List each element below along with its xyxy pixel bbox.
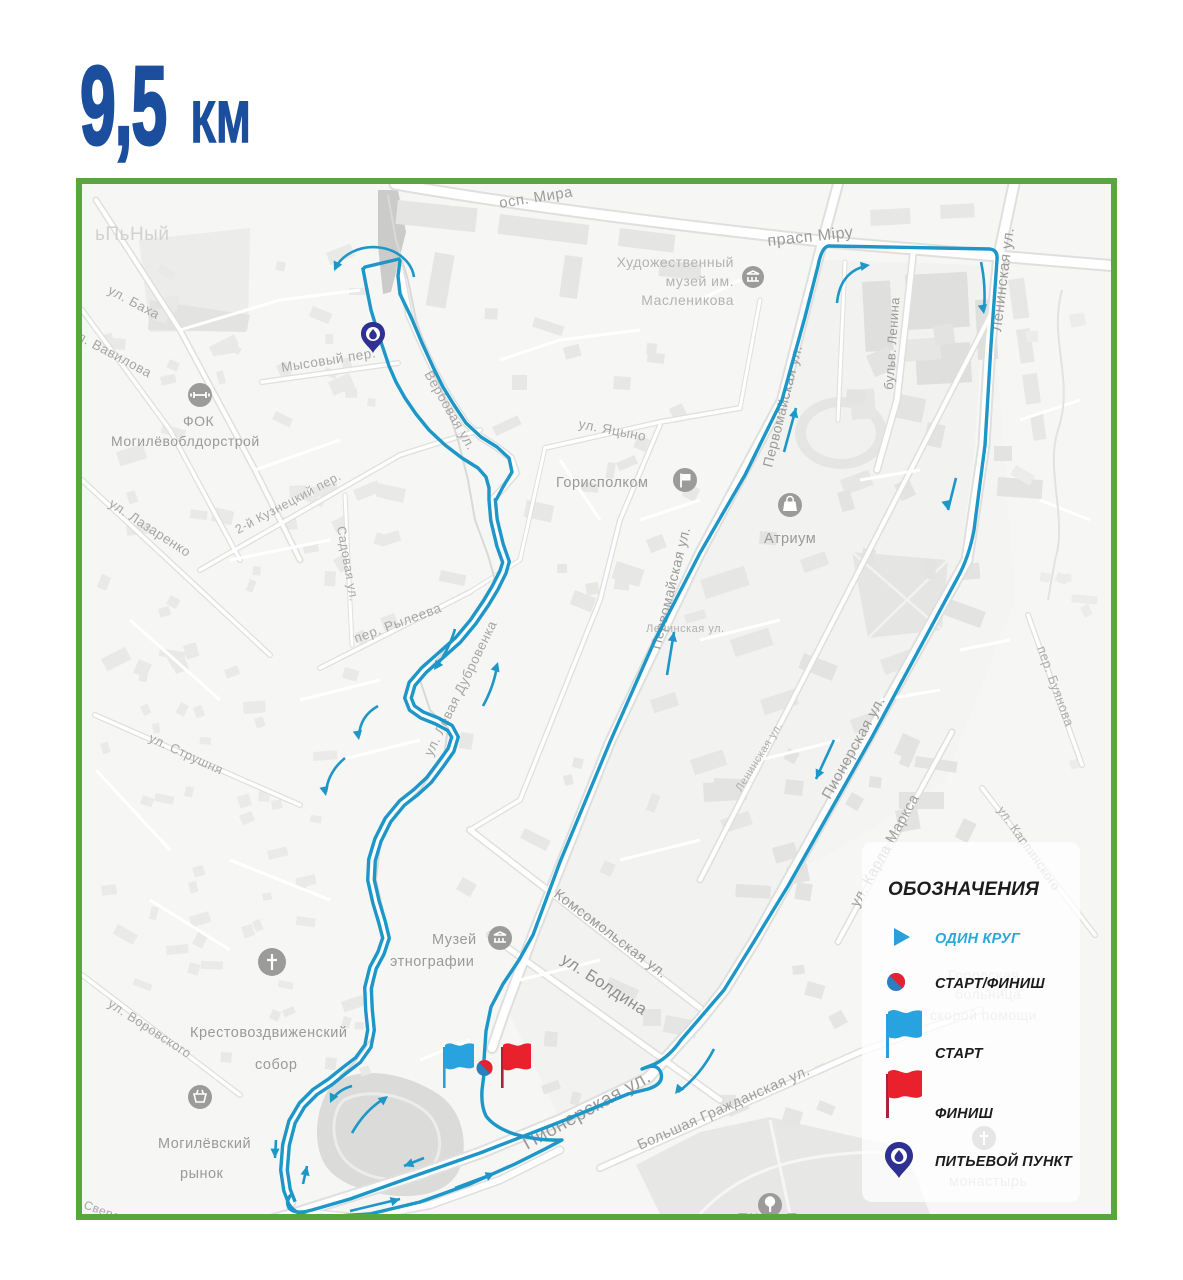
svg-text:ОБОЗНАЧЕНИЯ: ОБОЗНАЧЕНИЯ [888,879,1040,900]
svg-text:этнографии: этнографии [390,954,474,970]
svg-text:СТАРТ/ФИНИШ: СТАРТ/ФИНИШ [935,976,1045,992]
svg-text:ОДИН КРУГ: ОДИН КРУГ [935,931,1021,947]
svg-text:Крестовоздвиженский: Крестовоздвиженский [190,1025,347,1041]
svg-text:Музей: Музей [432,932,477,948]
svg-text:Могилёвоблдорстрой: Могилёвоблдорстрой [111,433,260,449]
svg-text:ФОК: ФОК [183,413,215,429]
svg-text:собор: собор [255,1057,297,1073]
svg-text:СТАРТ: СТАРТ [935,1046,984,1062]
svg-text:ПКиО Полнико: ПКиО Полнико [737,1211,853,1214]
svg-text:Могилёвский: Могилёвский [158,1136,251,1152]
svg-text:ьПьНый: ьПьНый [95,224,169,245]
svg-text:Горисполком: Горисполком [556,475,648,491]
svg-text:Масленикова: Масленикова [641,292,734,308]
svg-text:музей им.: музей им. [666,273,734,289]
svg-text:ФИНИШ: ФИНИШ [935,1106,993,1122]
svg-text:Художественный: Художественный [617,254,734,270]
svg-text:рынок: рынок [180,1166,224,1182]
svg-text:Атриум: Атриум [764,531,816,547]
svg-text:ПИТЬЕВОЙ ПУНКТ: ПИТЬЕВОЙ ПУНКТ [935,1152,1073,1170]
